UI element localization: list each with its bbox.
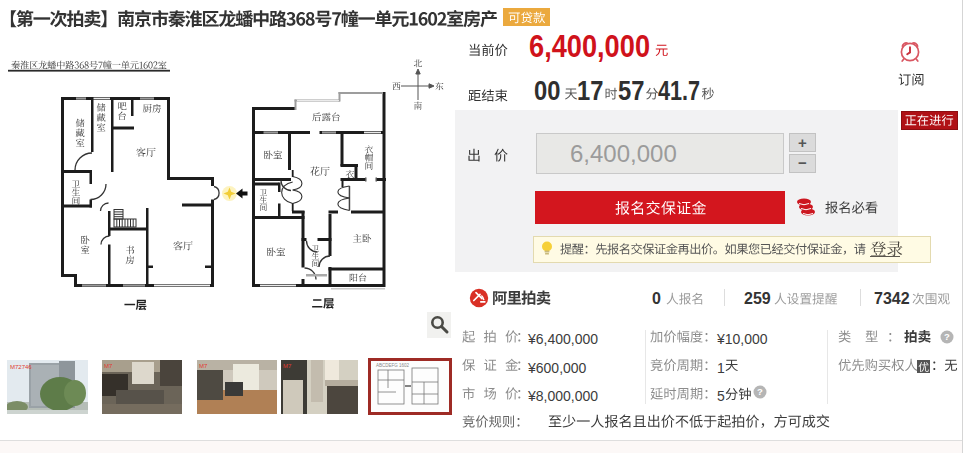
- svg-text:M7: M7: [104, 363, 113, 369]
- svg-text:?: ?: [757, 386, 763, 397]
- svg-text:M72746: M72746: [10, 364, 32, 370]
- svg-text:?: ?: [944, 331, 950, 342]
- svg-text:M7: M7: [283, 363, 292, 369]
- svg-text:ABCDEFG 1602: ABCDEFG 1602: [376, 363, 410, 368]
- svg-text:M7: M7: [199, 363, 208, 369]
